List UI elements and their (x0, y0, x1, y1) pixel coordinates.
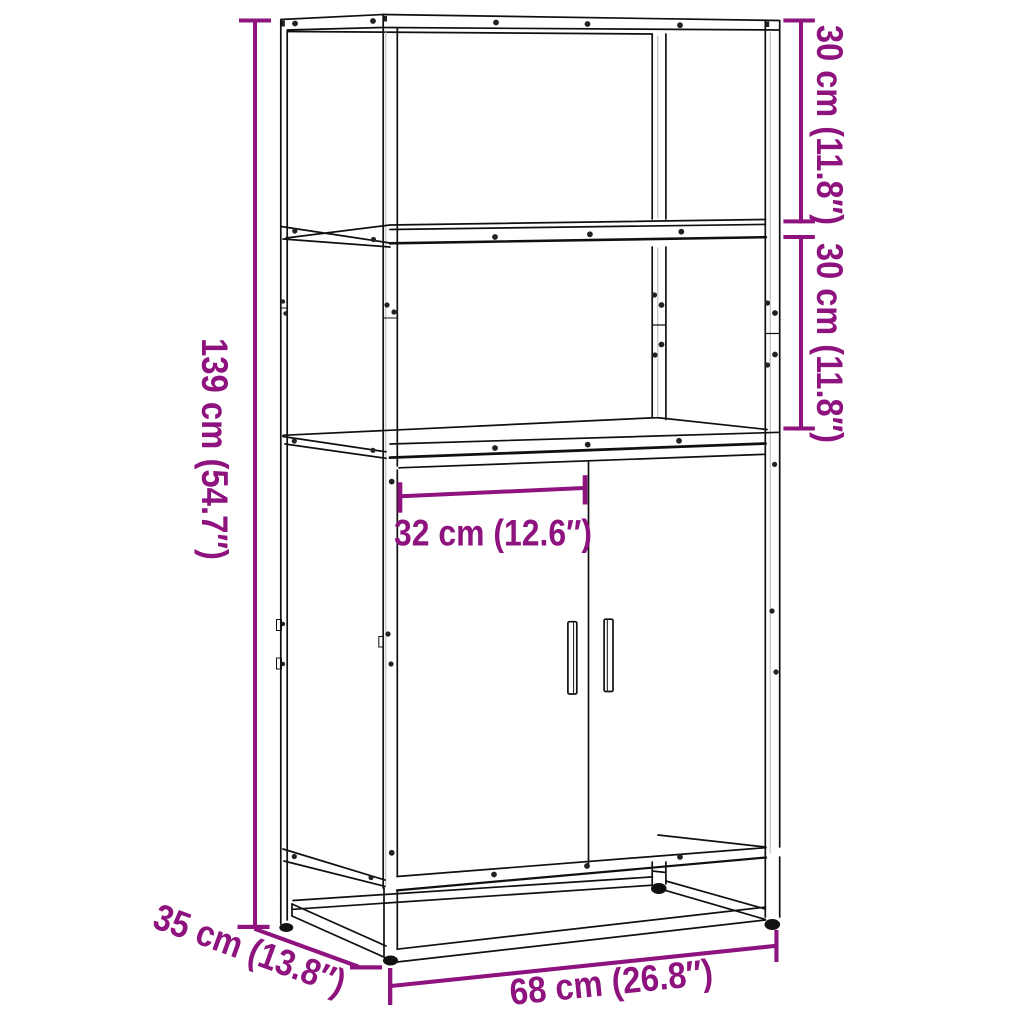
svg-text:32 cm (12.6″): 32 cm (12.6″) (394, 513, 592, 554)
svg-text:68 cm (26.8″): 68 cm (26.8″) (508, 952, 715, 1013)
svg-text:30 cm (11.8″): 30 cm (11.8″) (809, 243, 850, 443)
svg-text:30 cm (11.8″): 30 cm (11.8″) (809, 25, 850, 225)
svg-text:35 cm (13.8″): 35 cm (13.8″) (148, 896, 351, 1003)
svg-text:139 cm (54.7″): 139 cm (54.7″) (194, 338, 235, 560)
